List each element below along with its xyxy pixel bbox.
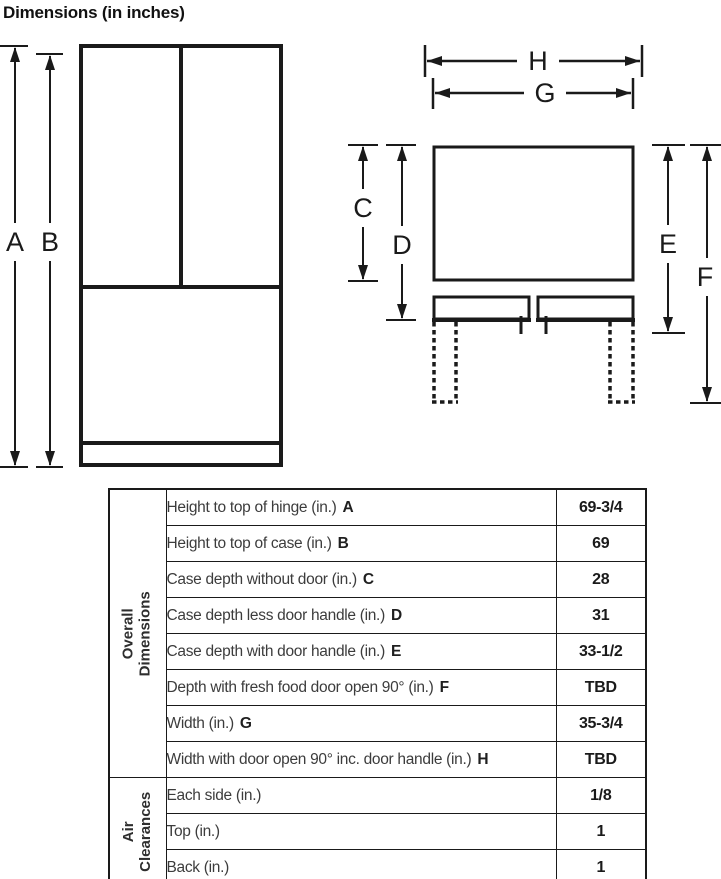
row-label: Height to top of case (in.) B: [166, 526, 556, 562]
arrow-up-icon: [10, 47, 20, 62]
table-row: Back (in.) 1: [109, 850, 646, 879]
row-label: Each side (in.): [166, 778, 556, 814]
door-open-projection-right: [608, 322, 635, 402]
arrow-up-icon: [45, 55, 55, 70]
arrow-down-icon: [358, 265, 368, 280]
front-view-diagram: A B: [0, 46, 283, 467]
arrow-right-icon: [616, 88, 631, 98]
row-value: TBD: [556, 742, 646, 778]
table-row: Case depth with door handle (in.) E 33-1…: [109, 634, 646, 670]
group-label-line: Dimensions: [138, 591, 155, 676]
dim-letter: C: [363, 571, 374, 588]
table-row: Case depth without door (in.) C 28: [109, 562, 646, 598]
dim-letter: A: [342, 499, 353, 516]
dim-label-b: B: [41, 227, 59, 257]
group-header-overall-dimensions: Overall Dimensions: [109, 489, 166, 778]
arrow-down-icon: [10, 451, 20, 466]
arrow-down-icon: [397, 304, 407, 319]
dim-label-c: C: [353, 193, 373, 223]
top-view-diagram: H G: [348, 45, 721, 403]
dim-line-b: [36, 54, 63, 467]
arrow-right-icon: [625, 56, 640, 66]
dim-label-f: F: [697, 262, 714, 292]
group-label-line: Overall: [121, 591, 138, 676]
dim-label-e: E: [659, 229, 677, 259]
left-door-top-outline: [434, 297, 529, 319]
row-value: 35-3/4: [556, 706, 646, 742]
table-row: Top (in.) 1: [109, 814, 646, 850]
row-label: Depth with fresh food door open 90° (in.…: [166, 670, 556, 706]
row-value: TBD: [556, 670, 646, 706]
dimensions-table: Overall Dimensions Height to top of hing…: [108, 488, 647, 879]
row-value: 31: [556, 598, 646, 634]
table-row: Depth with fresh food door open 90° (in.…: [109, 670, 646, 706]
arrow-up-icon: [702, 146, 712, 161]
arrow-up-icon: [663, 146, 673, 161]
door-open-projection-left: [432, 322, 458, 402]
row-value: 69-3/4: [556, 489, 646, 526]
dim-letter: G: [240, 715, 252, 732]
group-label-line: Clearances: [138, 791, 155, 871]
fridge-case-top-outline: [434, 147, 633, 280]
row-value: 1: [556, 814, 646, 850]
row-label: Back (in.): [166, 850, 556, 879]
right-door-top-outline: [538, 297, 633, 319]
row-label: Case depth less door handle (in.) D: [166, 598, 556, 634]
dim-letter: D: [391, 607, 402, 624]
dim-label-a: A: [6, 227, 24, 257]
row-label: Top (in.): [166, 814, 556, 850]
table-row: Overall Dimensions Height to top of hing…: [109, 489, 646, 526]
dim-letter: F: [440, 679, 449, 696]
spec-sheet-page: Dimensions (in inches) A: [0, 0, 721, 879]
row-label: Width (in.) G: [166, 706, 556, 742]
table-row: Height to top of case (in.) B 69: [109, 526, 646, 562]
row-value: 1/8: [556, 778, 646, 814]
dim-line-g: [433, 78, 633, 109]
dimensions-diagram: A B H: [0, 0, 721, 482]
group-header-air-clearances: Air Clearances: [109, 778, 166, 879]
arrow-down-icon: [45, 451, 55, 466]
row-label: Width with door open 90° inc. door handl…: [166, 742, 556, 778]
dim-label-d: D: [392, 230, 412, 260]
table-row: Width (in.) G 35-3/4: [109, 706, 646, 742]
row-value: 69: [556, 526, 646, 562]
dim-letter: B: [338, 535, 349, 552]
table-row: Air Clearances Each side (in.) 1/8: [109, 778, 646, 814]
row-label: Case depth without door (in.) C: [166, 562, 556, 598]
dim-label-h: H: [528, 46, 548, 76]
row-label: Height to top of hinge (in.) A: [166, 489, 556, 526]
row-value: 33-1/2: [556, 634, 646, 670]
table-row: Width with door open 90° inc. door handl…: [109, 742, 646, 778]
row-value: 1: [556, 850, 646, 879]
arrow-left-icon: [435, 88, 450, 98]
arrow-down-icon: [702, 387, 712, 402]
dim-letter: H: [477, 751, 488, 768]
table-row: Case depth less door handle (in.) D 31: [109, 598, 646, 634]
dim-label-g: G: [534, 78, 555, 108]
dim-letter: E: [391, 643, 401, 660]
group-label-line: Air: [121, 791, 138, 871]
arrow-up-icon: [358, 146, 368, 161]
row-value: 28: [556, 562, 646, 598]
row-label: Case depth with door handle (in.) E: [166, 634, 556, 670]
arrow-down-icon: [663, 317, 673, 332]
arrow-up-icon: [397, 146, 407, 161]
arrow-left-icon: [427, 56, 442, 66]
